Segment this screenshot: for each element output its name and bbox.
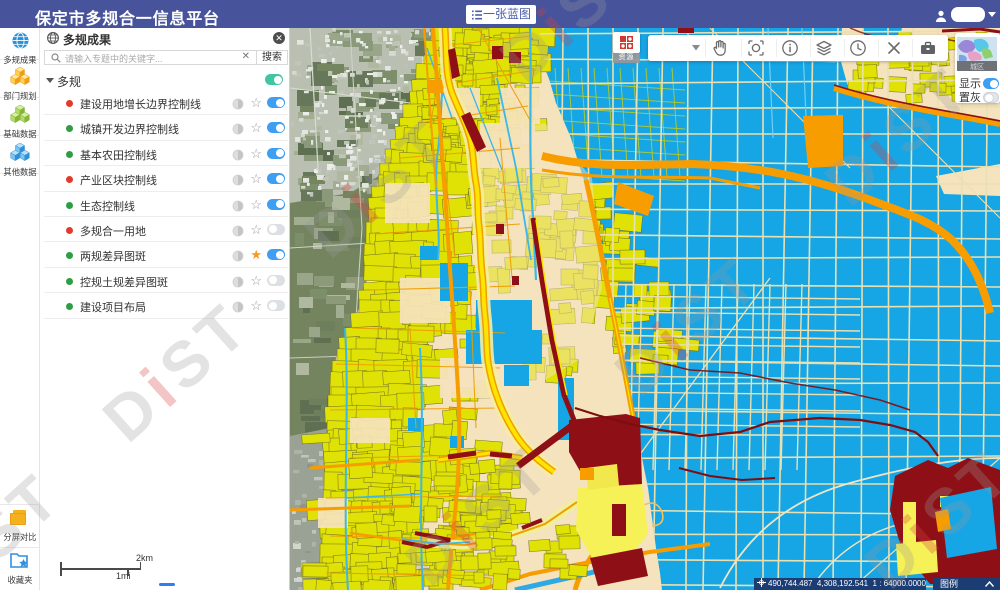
svg-text:城区: 城区 xyxy=(970,63,984,71)
